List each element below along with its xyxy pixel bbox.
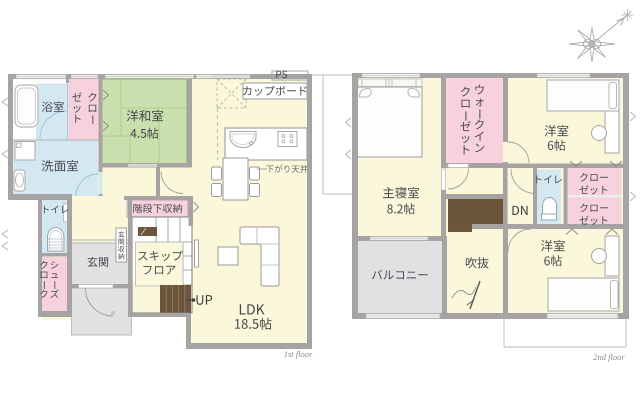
svg-text:1st floor: 1st floor bbox=[284, 349, 313, 359]
svg-text:2nd floor: 2nd floor bbox=[593, 352, 625, 362]
